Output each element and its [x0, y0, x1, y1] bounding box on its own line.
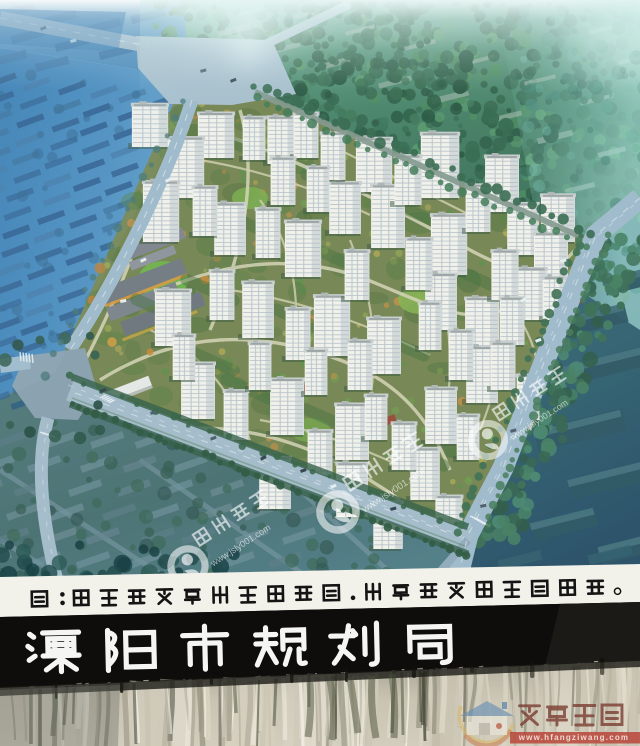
svg-text:www.hfangziwang.com: www.hfangziwang.com — [518, 733, 630, 742]
